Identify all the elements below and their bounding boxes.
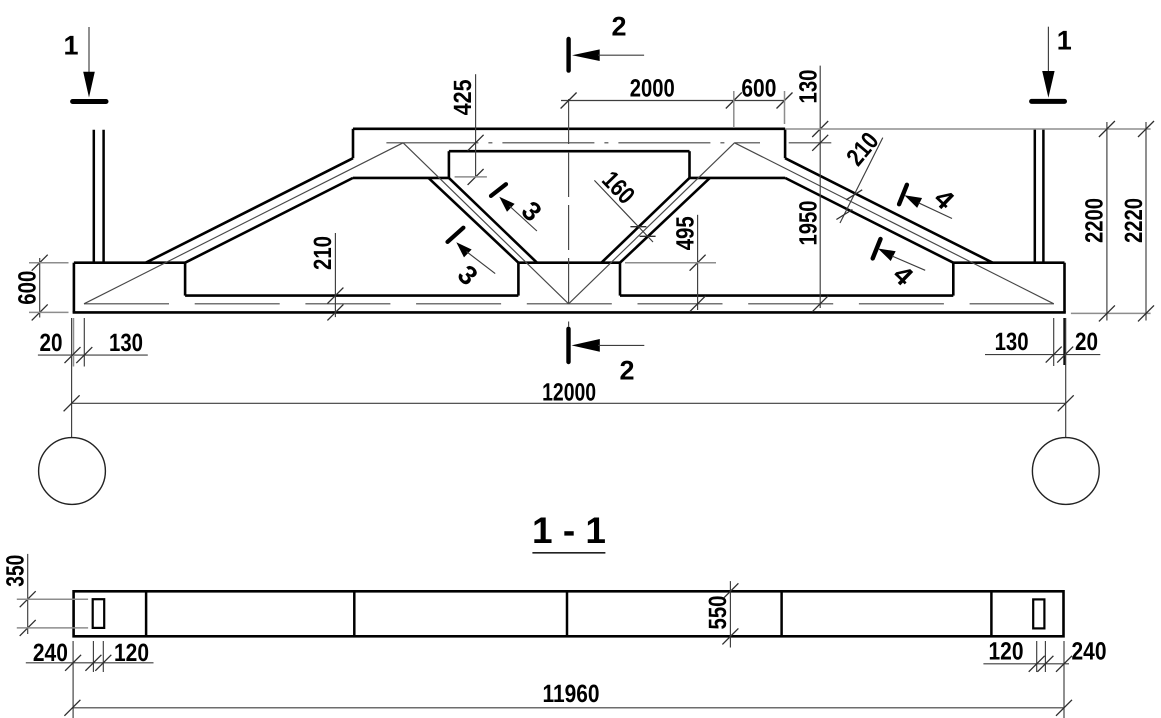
svg-text:600: 600: [14, 271, 42, 305]
svg-text:120: 120: [989, 637, 1024, 665]
svg-text:130: 130: [794, 70, 822, 104]
svg-text:130: 130: [109, 329, 143, 357]
svg-text:2: 2: [611, 12, 626, 42]
svg-text:600: 600: [741, 74, 776, 102]
svg-text:2200: 2200: [1081, 198, 1109, 243]
svg-text:495: 495: [671, 216, 699, 250]
svg-text:20: 20: [1075, 328, 1098, 356]
svg-text:2: 2: [619, 356, 634, 386]
svg-text:1: 1: [63, 31, 78, 61]
svg-text:2000: 2000: [630, 74, 675, 102]
svg-text:240: 240: [1072, 637, 1107, 665]
svg-text:1950: 1950: [794, 201, 822, 246]
svg-text:20: 20: [40, 329, 63, 357]
svg-text:2220: 2220: [1120, 198, 1148, 243]
svg-text:1 - 1: 1 - 1: [532, 510, 606, 551]
svg-text:1: 1: [1057, 26, 1072, 56]
svg-text:12000: 12000: [542, 379, 596, 407]
svg-text:210: 210: [309, 236, 337, 270]
svg-text:11960: 11960: [543, 680, 600, 708]
svg-text:240: 240: [33, 639, 68, 667]
svg-text:130: 130: [995, 328, 1029, 356]
svg-text:425: 425: [449, 79, 477, 115]
svg-text:350: 350: [2, 555, 30, 587]
svg-text:120: 120: [114, 639, 149, 667]
svg-text:550: 550: [704, 596, 732, 630]
